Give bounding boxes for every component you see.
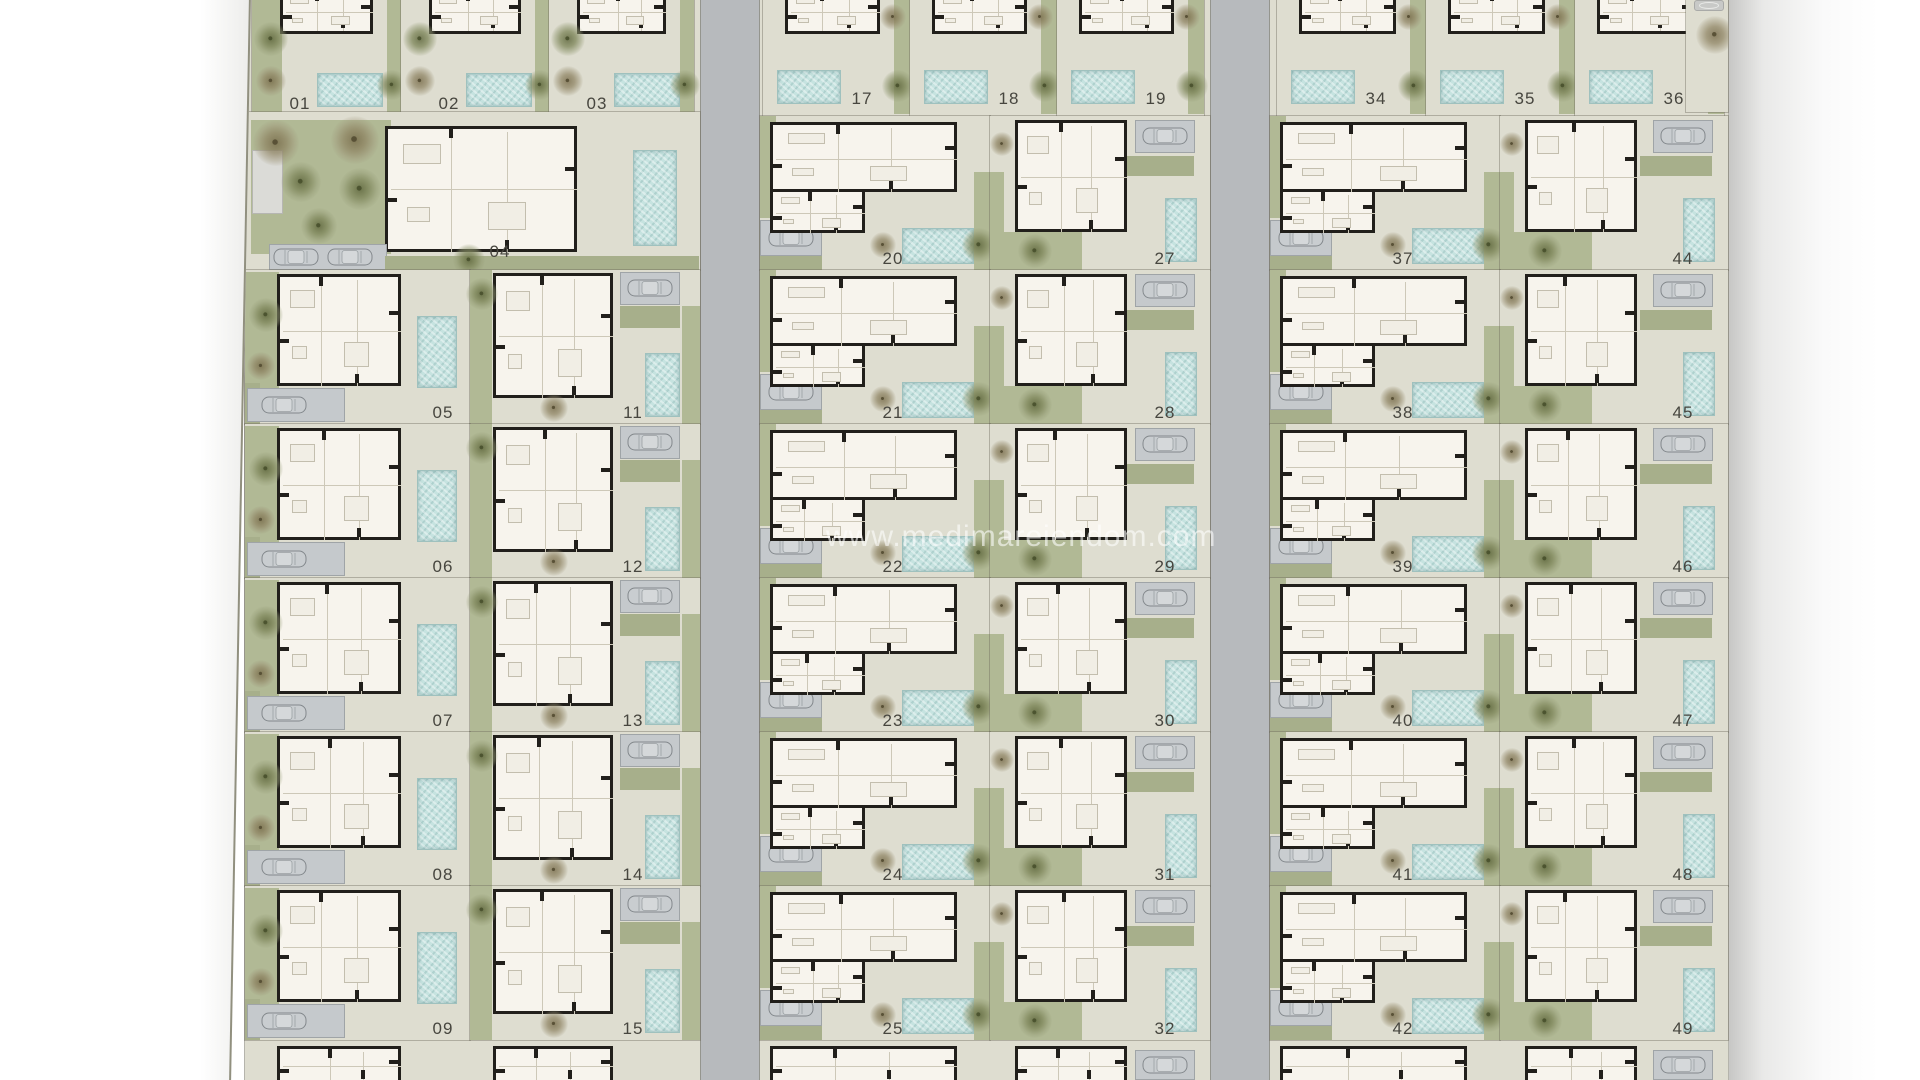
villa-floorplan xyxy=(1525,428,1637,540)
villa-floorplan xyxy=(277,428,401,540)
interior-line xyxy=(499,644,613,645)
plot-number: 31 xyxy=(1148,866,1182,884)
plot-number: 03 xyxy=(579,95,615,113)
car-icon xyxy=(1142,742,1188,762)
car-icon xyxy=(261,857,307,877)
interior-line xyxy=(1064,896,1065,1002)
villa-floorplan xyxy=(770,805,865,849)
furniture xyxy=(292,500,307,513)
furniture xyxy=(1380,320,1417,335)
car-icon xyxy=(1660,896,1706,916)
interior-wall xyxy=(1283,626,1292,630)
interior-line xyxy=(618,0,619,31)
furniture xyxy=(984,16,1003,25)
interior-wall xyxy=(283,15,292,19)
plot-14: 14 xyxy=(470,732,700,886)
plot-number: 25 xyxy=(876,1020,910,1038)
plot-number: 13 xyxy=(616,712,650,730)
villa-floorplan xyxy=(770,343,865,387)
furniture xyxy=(792,476,814,484)
interior-wall xyxy=(1056,585,1060,594)
tree-icon xyxy=(540,1010,568,1038)
interior-wall xyxy=(1528,1069,1537,1073)
interior-line xyxy=(1089,588,1090,694)
interior-line xyxy=(583,12,666,13)
villa-floorplan xyxy=(1525,582,1637,694)
tree-icon xyxy=(466,740,498,772)
plot-32: 32 xyxy=(990,886,1210,1040)
car-icon xyxy=(1142,896,1188,916)
interior-wall xyxy=(1403,950,1407,959)
garden xyxy=(1122,310,1194,330)
interior-wall xyxy=(808,192,812,201)
interior-wall xyxy=(1053,431,1057,440)
interior-line xyxy=(507,132,508,252)
interior-line xyxy=(1021,639,1127,640)
plot-number: 17 xyxy=(845,90,879,108)
villa-floorplan xyxy=(1280,651,1375,695)
interior-line xyxy=(1064,280,1065,386)
interior-wall xyxy=(808,808,812,817)
villa-floorplan xyxy=(1015,274,1127,386)
interior-line xyxy=(776,159,957,160)
interior-wall xyxy=(1399,642,1403,651)
interior-wall xyxy=(1455,916,1464,920)
interior-wall xyxy=(839,279,843,288)
interior-line xyxy=(972,0,973,31)
plot-28: 28 xyxy=(990,270,1210,424)
interior-wall xyxy=(496,345,505,349)
interior-wall xyxy=(1115,1060,1124,1064)
plot-22: 22 xyxy=(760,424,990,578)
interior-wall xyxy=(1349,125,1353,134)
interior-wall xyxy=(1115,619,1124,623)
furniture xyxy=(1608,0,1627,4)
interior-wall xyxy=(1572,739,1576,748)
interior-wall xyxy=(565,167,574,171)
interior-wall xyxy=(853,975,862,979)
interior-wall xyxy=(389,311,398,315)
furniture xyxy=(870,936,907,951)
furniture xyxy=(1501,16,1520,25)
plot-02: 02 xyxy=(401,0,549,116)
furniture xyxy=(783,373,794,378)
interior-wall xyxy=(945,762,954,766)
interior-wall xyxy=(1528,185,1537,189)
furniture xyxy=(1537,136,1559,154)
villa-floorplan xyxy=(280,0,373,34)
interior-wall xyxy=(1346,587,1350,596)
plot-44: 44 xyxy=(1500,116,1728,270)
interior-wall xyxy=(1384,5,1393,9)
interior-wall xyxy=(389,927,398,931)
interior-wall xyxy=(355,990,359,999)
villa-floorplan xyxy=(1299,0,1396,34)
furniture xyxy=(870,320,907,335)
plot-number: 01 xyxy=(282,95,318,113)
garden xyxy=(1270,1026,1332,1040)
furniture xyxy=(506,445,530,465)
interior-line xyxy=(1574,742,1575,848)
interior-wall xyxy=(543,430,547,439)
interior-line xyxy=(286,12,373,13)
furniture xyxy=(822,372,841,382)
furniture xyxy=(1027,598,1049,616)
interior-line xyxy=(359,434,360,540)
furniture xyxy=(344,496,369,521)
interior-wall xyxy=(1563,893,1567,902)
furniture xyxy=(508,970,522,985)
interior-wall xyxy=(1363,205,1372,209)
interior-wall xyxy=(1625,927,1634,931)
villa-floorplan xyxy=(577,0,666,34)
interior-line xyxy=(838,744,839,808)
tree-icon xyxy=(1018,850,1052,884)
plot-47: 47 xyxy=(1500,578,1728,732)
plot-number: 41 xyxy=(1386,866,1420,884)
interior-line xyxy=(776,467,957,468)
furniture xyxy=(783,835,794,840)
villa-floorplan xyxy=(770,189,865,233)
watermark: www.medimareiendom.com xyxy=(826,520,1216,554)
furniture xyxy=(788,133,825,144)
interior-line xyxy=(451,132,452,252)
plot-number: 15 xyxy=(616,1020,650,1038)
furniture xyxy=(783,681,794,686)
villa-floorplan xyxy=(493,889,613,1014)
plot-04: 04 xyxy=(245,112,700,270)
tree-icon xyxy=(540,548,568,576)
interior-wall xyxy=(868,5,877,9)
pool xyxy=(1589,70,1653,104)
interior-wall xyxy=(833,587,837,596)
interior-wall xyxy=(970,0,974,1)
plot-37: 37 xyxy=(1270,116,1500,270)
left-paper-margin xyxy=(0,0,260,1080)
garden xyxy=(760,564,822,578)
furniture xyxy=(1650,16,1669,25)
car-icon xyxy=(1660,742,1706,762)
interior-wall xyxy=(1346,1049,1350,1058)
interior-wall xyxy=(889,180,893,189)
plot-number: 14 xyxy=(616,866,650,884)
interior-line xyxy=(1603,126,1604,232)
interior-line xyxy=(1632,0,1633,31)
interior-wall xyxy=(1283,832,1292,836)
furniture xyxy=(943,0,962,4)
furniture xyxy=(1029,346,1042,359)
interior-wall xyxy=(1451,15,1460,19)
tree-icon xyxy=(540,702,568,730)
garden xyxy=(1270,410,1332,424)
interior-line xyxy=(776,775,957,776)
plot-06: 06 xyxy=(245,424,470,578)
tree-icon xyxy=(339,168,381,210)
interior-line xyxy=(283,1066,401,1067)
furniture xyxy=(344,804,369,829)
interior-line xyxy=(545,433,546,552)
furniture xyxy=(783,989,794,994)
furniture xyxy=(1293,989,1304,994)
interior-line xyxy=(499,1066,613,1067)
furniture xyxy=(1312,18,1324,23)
villa-floorplan xyxy=(770,651,865,695)
interior-line xyxy=(1603,12,1694,13)
interior-wall xyxy=(496,1069,505,1073)
interior-line xyxy=(283,485,401,486)
furniture xyxy=(781,659,800,666)
interior-line xyxy=(1286,675,1375,676)
villa-floorplan xyxy=(770,276,957,346)
plot-11: 11 xyxy=(470,270,700,424)
plot-35: 35 xyxy=(1426,0,1575,116)
interior-wall xyxy=(1343,433,1347,442)
tree-icon xyxy=(1500,902,1524,926)
interior-wall xyxy=(773,216,782,220)
villa-floorplan xyxy=(1525,736,1637,848)
interior-line xyxy=(1091,742,1092,848)
interior-line xyxy=(1091,126,1092,232)
garden xyxy=(620,922,680,944)
car-icon xyxy=(1660,588,1706,608)
garden xyxy=(1270,564,1332,578)
interior-wall xyxy=(945,1060,954,1064)
interior-wall xyxy=(853,821,862,825)
plot-49: 49 xyxy=(1500,886,1728,1040)
interior-wall xyxy=(1087,682,1091,691)
plot-number: 35 xyxy=(1508,90,1542,108)
interior-line xyxy=(468,0,469,31)
interior-wall xyxy=(1533,5,1542,9)
interior-line xyxy=(1286,621,1467,622)
plot-23: 23 xyxy=(760,578,990,732)
interior-wall xyxy=(319,277,323,286)
tree-icon xyxy=(249,606,283,640)
villa-floorplan xyxy=(493,427,613,552)
interior-wall xyxy=(1283,472,1292,476)
interior-wall xyxy=(361,5,370,9)
interior-line xyxy=(1286,213,1375,214)
garden xyxy=(1122,926,1194,946)
furniture xyxy=(1380,782,1417,797)
interior-line xyxy=(576,433,577,552)
interior-line xyxy=(1531,177,1637,178)
plot-number: 38 xyxy=(1386,404,1420,422)
interior-wall xyxy=(1528,493,1537,497)
furniture xyxy=(798,18,809,23)
furniture xyxy=(290,752,315,770)
interior-wall xyxy=(945,454,954,458)
interior-wall xyxy=(1601,836,1605,845)
tree-icon xyxy=(1545,4,1571,30)
furniture xyxy=(1291,197,1310,204)
interior-wall xyxy=(568,1070,572,1079)
furniture xyxy=(1537,290,1559,308)
interior-line xyxy=(1093,280,1094,386)
interior-wall xyxy=(1528,801,1537,805)
interior-line xyxy=(1021,947,1127,948)
interior-wall xyxy=(945,300,954,304)
interior-wall xyxy=(1595,990,1599,999)
interior-wall xyxy=(773,780,782,784)
garden xyxy=(1640,618,1712,638)
garden xyxy=(620,614,680,636)
interior-wall xyxy=(1455,300,1464,304)
plot-number: 34 xyxy=(1359,90,1393,108)
furniture xyxy=(1029,192,1042,205)
interior-wall xyxy=(1397,488,1401,497)
furniture xyxy=(1076,804,1098,829)
villa-floorplan xyxy=(1597,0,1694,34)
road xyxy=(1210,0,1270,1080)
interior-line xyxy=(1021,177,1127,178)
villa-floorplan xyxy=(1280,1046,1467,1080)
villa-floorplan xyxy=(277,274,401,386)
garden xyxy=(1122,156,1194,176)
interior-wall xyxy=(945,608,954,612)
interior-wall xyxy=(1115,927,1124,931)
tree-icon xyxy=(1174,4,1200,30)
interior-wall xyxy=(1403,334,1407,343)
plot-07: 07 xyxy=(245,578,470,732)
furniture xyxy=(506,753,530,773)
furniture xyxy=(403,144,441,164)
interior-wall xyxy=(537,738,541,747)
tree-icon xyxy=(253,120,299,166)
interior-line xyxy=(574,895,575,1014)
interior-wall xyxy=(1056,1049,1060,1058)
furniture xyxy=(1332,680,1351,690)
interior-wall xyxy=(1566,431,1570,440)
plot-number: 05 xyxy=(425,404,461,422)
furniture xyxy=(1076,342,1098,367)
furniture xyxy=(441,18,452,23)
tree-icon xyxy=(405,66,435,96)
plot-number: 29 xyxy=(1148,558,1182,576)
plot-08: 08 xyxy=(245,732,470,886)
interior-line xyxy=(1351,744,1352,808)
furniture xyxy=(1027,752,1049,770)
garden xyxy=(385,256,699,270)
villa-floorplan xyxy=(277,1046,401,1080)
tree-icon xyxy=(403,22,437,56)
tree-icon xyxy=(1018,234,1052,268)
furniture xyxy=(480,16,498,25)
interior-line xyxy=(357,280,358,386)
interior-wall xyxy=(842,433,846,442)
interior-wall xyxy=(1062,277,1066,286)
furniture xyxy=(1131,16,1150,25)
interior-wall xyxy=(1563,277,1567,286)
villa-floorplan xyxy=(277,736,401,848)
interior-line xyxy=(1348,590,1349,654)
plot-number: 27 xyxy=(1148,250,1182,268)
car-icon xyxy=(261,395,307,415)
furniture xyxy=(1076,958,1098,983)
interior-wall xyxy=(328,739,332,748)
furniture xyxy=(1298,287,1335,298)
interior-wall xyxy=(1089,836,1093,845)
interior-line xyxy=(1286,775,1467,776)
interior-line xyxy=(283,947,401,948)
interior-line xyxy=(536,587,537,706)
furniture xyxy=(792,784,814,792)
interior-line xyxy=(1351,128,1352,192)
garden xyxy=(1270,256,1332,270)
interior-line xyxy=(357,896,358,1002)
furniture xyxy=(781,197,800,204)
interior-wall xyxy=(1115,157,1124,161)
interior-line xyxy=(321,280,322,386)
furniture xyxy=(792,938,814,946)
interior-line xyxy=(499,336,613,337)
interior-wall xyxy=(1363,359,1372,363)
interior-wall xyxy=(355,374,359,383)
tree-icon xyxy=(990,748,1014,772)
interior-line xyxy=(1565,280,1566,386)
interior-wall xyxy=(773,1069,782,1073)
car-icon xyxy=(1660,280,1706,300)
furniture xyxy=(1293,219,1304,224)
interior-line xyxy=(317,0,318,31)
interior-line xyxy=(791,12,880,13)
interior-wall xyxy=(853,513,862,517)
furniture xyxy=(870,474,907,489)
plot-number: 08 xyxy=(425,866,461,884)
villa-floorplan xyxy=(1079,0,1174,34)
interior-line xyxy=(361,588,362,694)
villa-floorplan xyxy=(1280,189,1375,233)
furniture xyxy=(783,527,794,532)
villa-floorplan xyxy=(1280,959,1375,1003)
furniture xyxy=(1539,192,1552,205)
car-icon xyxy=(1660,434,1706,454)
interior-wall xyxy=(574,540,578,549)
plot-20: 20 xyxy=(760,116,990,270)
villa-floorplan xyxy=(1280,805,1375,849)
furniture xyxy=(1029,500,1042,513)
interior-line xyxy=(938,12,1027,13)
interior-line xyxy=(776,929,957,930)
pool xyxy=(645,353,680,417)
interior-line xyxy=(776,621,957,622)
interior-wall xyxy=(1625,1060,1634,1064)
interior-line xyxy=(1354,898,1355,962)
tree-icon xyxy=(990,286,1014,310)
furniture xyxy=(506,599,530,619)
villa-floorplan xyxy=(785,0,880,34)
interior-wall xyxy=(616,0,620,1)
interior-wall xyxy=(1082,15,1091,19)
villa-floorplan xyxy=(1015,890,1127,1002)
interior-wall xyxy=(853,205,862,209)
interior-wall xyxy=(805,654,809,663)
interior-wall xyxy=(388,198,397,202)
furniture xyxy=(407,207,430,222)
interior-wall xyxy=(1120,0,1124,1)
plot-number: 39 xyxy=(1386,558,1420,576)
plot-29: 29 xyxy=(990,424,1210,578)
interior-wall xyxy=(357,528,361,537)
interior-wall xyxy=(1625,773,1634,777)
furniture xyxy=(1537,444,1559,462)
garden xyxy=(620,768,680,790)
interior-wall xyxy=(540,276,544,285)
plot-03: 03 xyxy=(549,0,694,116)
interior-wall xyxy=(389,619,398,623)
garden xyxy=(760,872,822,886)
tree-icon xyxy=(553,66,583,96)
